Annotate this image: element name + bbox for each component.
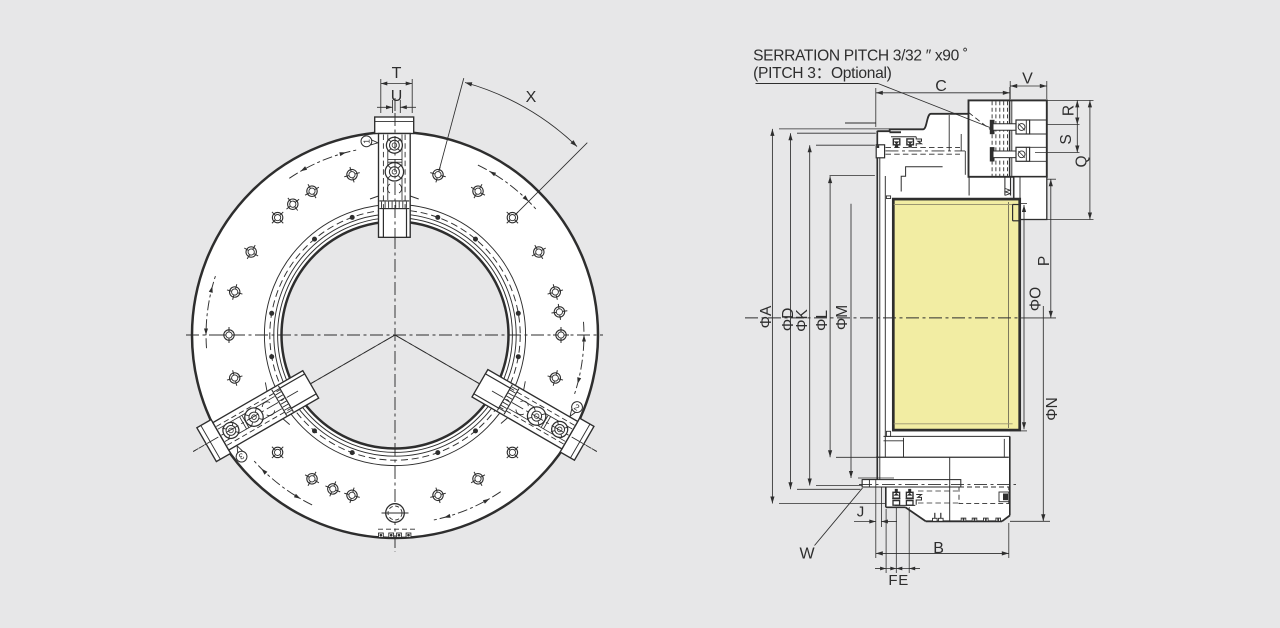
svg-text:P: P xyxy=(1036,256,1053,266)
svg-text:ΦL: ΦL xyxy=(814,310,831,331)
svg-text:S: S xyxy=(1058,134,1075,144)
svg-text:B: B xyxy=(933,540,944,557)
svg-text:X: X xyxy=(526,89,537,106)
svg-text:ΦN: ΦN xyxy=(1044,397,1061,421)
svg-text:SERRATION PITCH 3/32 ″ x90 ˚: SERRATION PITCH 3/32 ″ x90 ˚ xyxy=(753,48,968,65)
svg-text:V: V xyxy=(1022,71,1033,88)
svg-text:ΦK: ΦK xyxy=(794,308,811,331)
svg-text:ΦA: ΦA xyxy=(758,305,775,328)
svg-text:Q: Q xyxy=(1074,155,1091,167)
svg-text:E: E xyxy=(898,572,908,589)
svg-text:C: C xyxy=(935,78,947,95)
svg-text:1: 1 xyxy=(362,139,372,144)
svg-text:T: T xyxy=(392,65,402,82)
svg-text:F: F xyxy=(888,572,897,589)
svg-text:R: R xyxy=(1061,105,1078,116)
svg-text:J: J xyxy=(857,504,865,521)
svg-text:(PITCH 3：Optional): (PITCH 3：Optional) xyxy=(753,65,892,82)
svg-text:W: W xyxy=(799,545,815,562)
svg-text:U: U xyxy=(391,88,403,105)
svg-text:ΦO: ΦO xyxy=(1028,287,1045,311)
